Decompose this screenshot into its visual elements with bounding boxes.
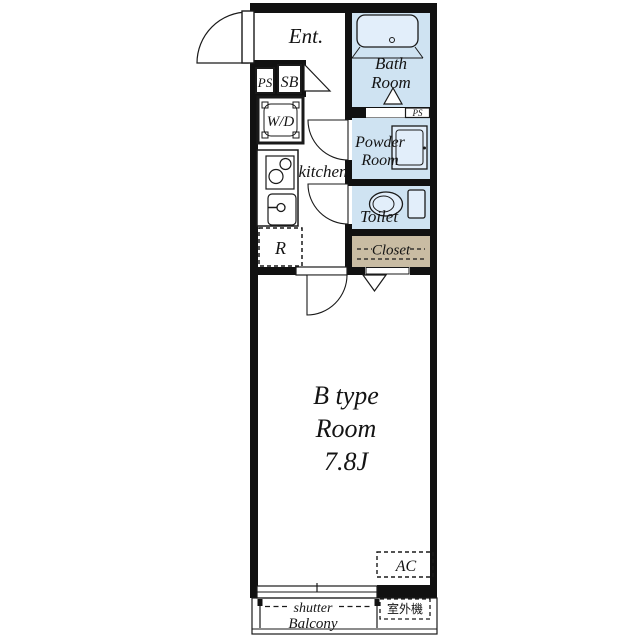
wall-room-top-left bbox=[250, 267, 296, 275]
wall-bottom-right bbox=[377, 585, 437, 598]
wall-room-top-mid bbox=[347, 267, 365, 275]
wall-powder-toilet bbox=[345, 179, 430, 186]
room-door-swing-icon bbox=[307, 275, 347, 315]
shoe-box-label: SB bbox=[281, 74, 299, 91]
bath-label-line1: Bath bbox=[375, 54, 407, 73]
bath-door-opening bbox=[366, 108, 405, 118]
entrance-door-swing-icon bbox=[197, 12, 248, 63]
room-label-line2: Room bbox=[315, 414, 377, 443]
room-door-leaf-icon bbox=[296, 267, 347, 275]
bathtub-icon bbox=[357, 15, 418, 47]
shutter-label: shutter bbox=[294, 601, 333, 616]
balcony-area: shutter Balcony 室外機 bbox=[252, 598, 437, 634]
powder-door-swing-icon bbox=[308, 120, 348, 160]
refrigerator-label: R bbox=[274, 238, 286, 258]
balcony-post-left bbox=[258, 599, 263, 606]
wall-right bbox=[430, 13, 437, 598]
pipe-space-2-label: PS bbox=[412, 108, 423, 118]
wall-mid-upper bbox=[345, 13, 352, 120]
wall-room-top-right bbox=[410, 267, 437, 275]
closet-door-track bbox=[366, 268, 409, 275]
toilet-tank-icon bbox=[408, 190, 425, 218]
kitchen-counter bbox=[257, 150, 298, 226]
vanity-faucet-icon bbox=[423, 147, 426, 150]
balcony-post-right bbox=[375, 599, 380, 606]
wall-toilet-closet bbox=[345, 229, 430, 236]
washer-dryer-area: W/D bbox=[258, 97, 303, 143]
wall-top bbox=[250, 3, 437, 13]
floor-plan-page: Ent. PS SB W/D kitchen R Bath Room bbox=[0, 0, 640, 640]
entrance-label: Ent. bbox=[288, 24, 323, 48]
room-label-line3: 7.8J bbox=[324, 447, 370, 476]
powder-label-line1: Powder bbox=[354, 134, 406, 151]
shoe-box-door-triangle-icon bbox=[304, 64, 330, 91]
wall-bottom-left-stub bbox=[250, 585, 257, 598]
toilet-door-swing-icon bbox=[308, 184, 348, 224]
toilet-label: Toilet bbox=[360, 207, 399, 226]
main-room-area: B type Room 7.8J AC bbox=[296, 267, 433, 577]
ac-label: AC bbox=[395, 558, 417, 575]
closet-label: Closet bbox=[372, 243, 411, 259]
entrance-area: Ent. bbox=[197, 11, 323, 63]
balcony-label: Balcony bbox=[288, 616, 337, 632]
room-label-line1: B type bbox=[313, 381, 379, 410]
washer-dryer-label: W/D bbox=[267, 114, 295, 130]
closet-door-triangle-icon bbox=[363, 275, 386, 291]
outdoor-unit-label: 室外機 bbox=[387, 601, 423, 616]
pipe-space-label: PS bbox=[257, 75, 273, 90]
kitchen-label: kitchen bbox=[298, 162, 347, 181]
entrance-door-leaf-icon bbox=[242, 11, 254, 63]
window-area bbox=[257, 583, 377, 598]
bath-label-line2: Room bbox=[370, 73, 411, 92]
floor-plan: Ent. PS SB W/D kitchen R Bath Room bbox=[0, 0, 640, 640]
powder-label-line2: Room bbox=[360, 152, 398, 169]
